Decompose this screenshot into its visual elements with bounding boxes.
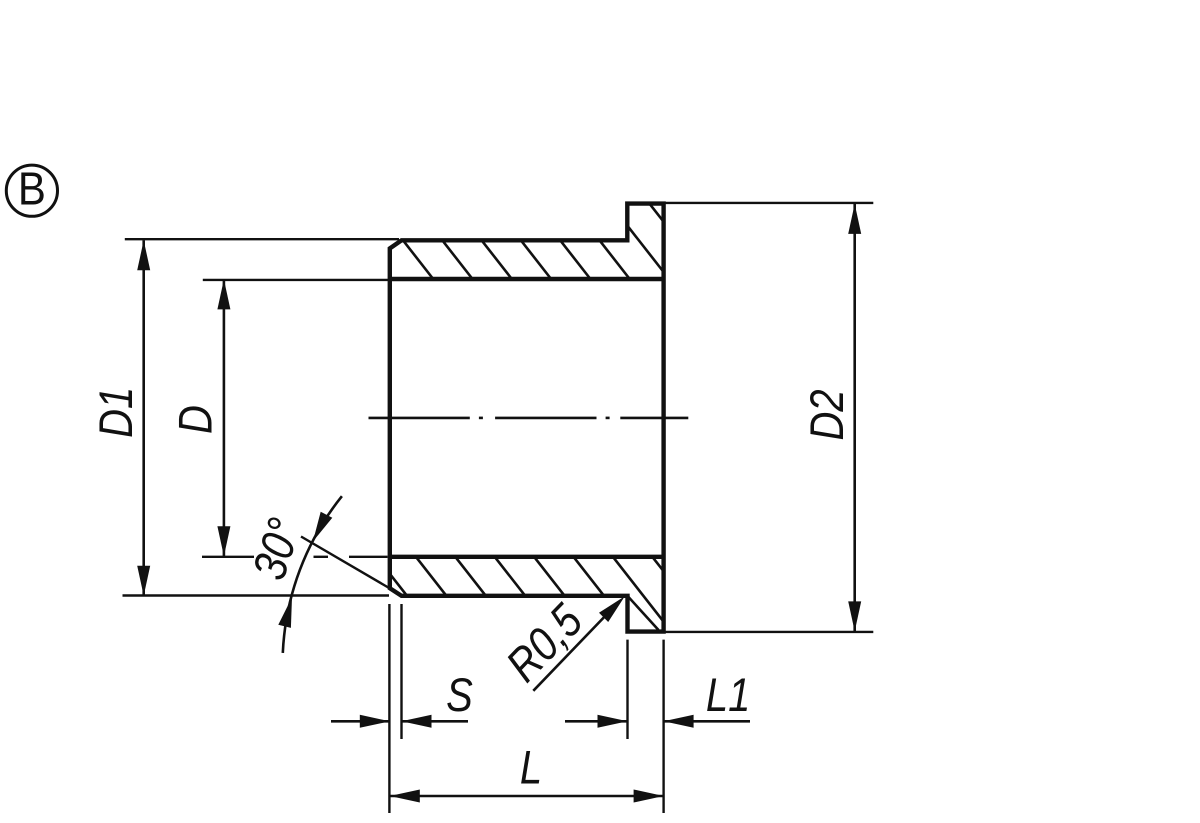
svg-text:L: L (520, 741, 542, 794)
svg-text:D1: D1 (90, 387, 143, 438)
svg-text:D2: D2 (801, 389, 854, 440)
svg-text:B: B (18, 164, 46, 215)
svg-text:S: S (446, 669, 473, 722)
svg-text:D: D (169, 405, 222, 434)
svg-text:L1: L1 (706, 669, 750, 722)
